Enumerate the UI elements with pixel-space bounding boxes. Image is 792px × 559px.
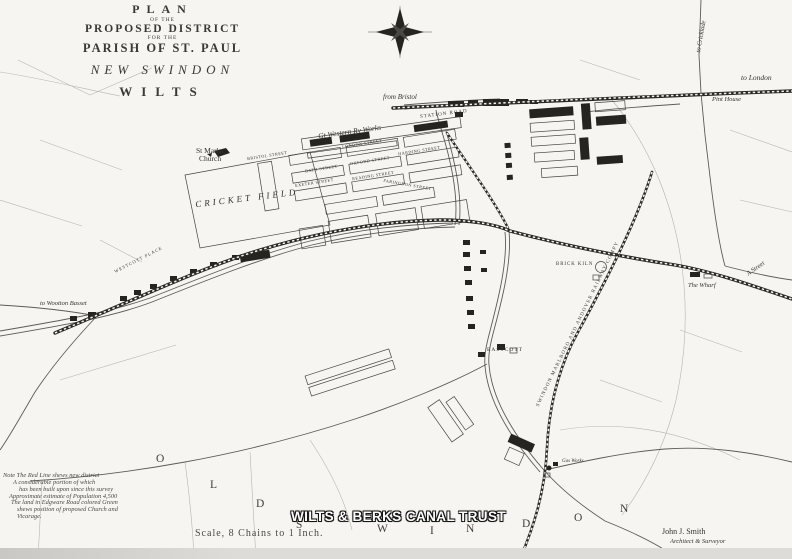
title-line-proposed-district: PROPOSED DISTRICT xyxy=(30,23,295,35)
label-to-london: to London xyxy=(741,74,772,82)
area-letter-n2: N xyxy=(620,504,628,516)
label-eastcott: EASTCOTT xyxy=(487,348,523,354)
scale-text: Scale, 8 Chains to 1 Inch. xyxy=(195,529,323,539)
area-letter-w: W xyxy=(377,524,388,536)
surveyor-role: Architect & Surveyor xyxy=(670,539,725,546)
area-letter-d1: D xyxy=(256,499,264,511)
note-line: Vicarage. xyxy=(3,514,118,521)
surveyor-name: John J. Smith xyxy=(662,528,705,536)
label-brick-kiln: BRICK KILN xyxy=(556,263,593,268)
label-st-marks-church: Church xyxy=(199,155,221,163)
title-line-plan: PLAN xyxy=(30,2,295,17)
title-line-parish: PARISH OF ST. PAUL xyxy=(30,41,295,56)
map-note: Note The Red Line shews new district A c… xyxy=(3,473,118,521)
gasworks-plots xyxy=(501,434,535,468)
field-strips xyxy=(428,392,475,442)
label-to-wootton-bassett: to Wootton Basset xyxy=(40,301,87,308)
compass-rose-icon xyxy=(368,6,432,58)
field-boundaries xyxy=(0,60,792,559)
east-town-blocks xyxy=(502,101,630,180)
label-the-wharf: The Wharf xyxy=(688,283,716,290)
label-from-bristol: from Bristol xyxy=(383,94,417,101)
map-title-block: PLAN OF THE PROPOSED DISTRICT FOR THE PA… xyxy=(30,2,295,100)
area-letter-o1: O xyxy=(156,454,164,466)
title-line-wilts: WILTS xyxy=(30,84,295,100)
map-scan-page: PLAN OF THE PROPOSED DISTRICT FOR THE PA… xyxy=(0,0,792,559)
area-letter-o2: O xyxy=(574,513,582,525)
label-pint-house: Pint House xyxy=(712,97,741,104)
area-letter-d2: D xyxy=(522,519,530,531)
allotment-strips xyxy=(305,349,395,396)
label-gas-works: Gas Works xyxy=(562,459,584,464)
area-letter-l: L xyxy=(210,480,217,492)
scan-edge xyxy=(0,548,792,559)
title-line-new-swindon: NEW SWINDON xyxy=(30,62,295,78)
canal-line xyxy=(55,220,792,333)
area-letter-n1: N xyxy=(466,524,474,536)
area-letter-i: I xyxy=(430,526,434,538)
canal-trust-watermark: WILTS & BERKS CANAL TRUST xyxy=(291,509,506,524)
